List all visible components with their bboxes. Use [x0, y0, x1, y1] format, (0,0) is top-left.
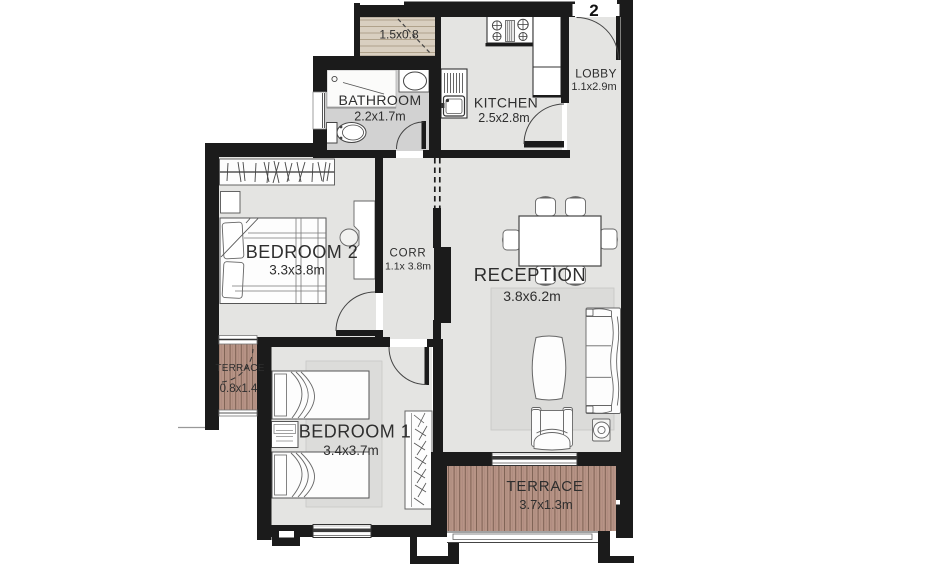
svg-text:CORR: CORR	[389, 248, 426, 260]
svg-text:TERRACE: TERRACE	[506, 478, 583, 495]
svg-text:1.1x 3.8m: 1.1x 3.8m	[385, 261, 431, 273]
svg-text:2.5x2.8m: 2.5x2.8m	[478, 111, 529, 125]
svg-text:BEDROOM 2: BEDROOM 2	[246, 242, 359, 262]
svg-text:3.8x6.2m: 3.8x6.2m	[503, 288, 561, 304]
svg-text:BEDROOM 1: BEDROOM 1	[299, 422, 412, 442]
svg-text:3.7x1.3m: 3.7x1.3m	[519, 497, 572, 512]
svg-text:3.4x3.7m: 3.4x3.7m	[323, 443, 379, 458]
svg-text:LOBBY: LOBBY	[575, 67, 617, 81]
svg-text:TERRACE: TERRACE	[215, 363, 264, 374]
svg-text:BATHROOM: BATHROOM	[338, 92, 421, 108]
svg-text:3.3x3.8m: 3.3x3.8m	[269, 263, 325, 278]
svg-text:KITCHEN: KITCHEN	[474, 95, 538, 111]
svg-text:2: 2	[589, 1, 598, 20]
svg-text:1.5x0.8: 1.5x0.8	[379, 28, 419, 42]
svg-text:2.2x1.7m: 2.2x1.7m	[354, 110, 405, 124]
svg-text:RECEPTION: RECEPTION	[474, 264, 586, 285]
svg-text:1.1x2.9m: 1.1x2.9m	[571, 81, 616, 93]
svg-text:0.8x1.4: 0.8x1.4	[220, 383, 258, 395]
